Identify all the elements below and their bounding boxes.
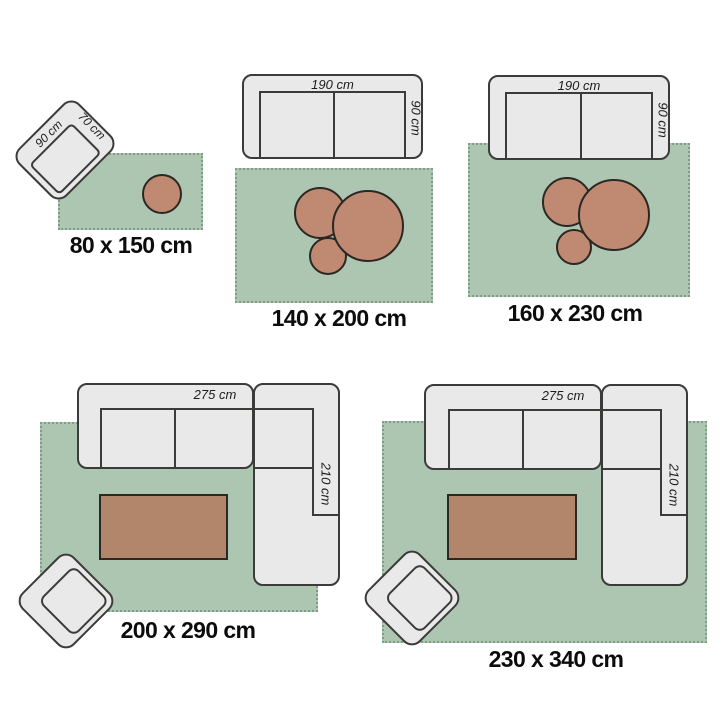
sofa-seat-outline xyxy=(505,92,653,158)
size-label-140x200: 140 x 200 cm xyxy=(272,305,407,332)
coffee-table xyxy=(447,494,577,560)
seat-arm-line xyxy=(448,409,450,470)
chaise-arm-end-line xyxy=(660,514,686,516)
sofa-width-label: 190 cm xyxy=(244,77,421,92)
size-label-230x340: 230 x 340 cm xyxy=(489,646,624,673)
corner-seat-line xyxy=(255,467,314,469)
sofa-depth-label: 90 cm xyxy=(656,102,671,137)
sofa-width-label: 190 cm xyxy=(490,78,668,93)
sectional-width-label: 275 cm xyxy=(194,387,237,402)
chaise-arm-line xyxy=(312,408,314,516)
cushion-divider-line xyxy=(174,408,176,469)
chaise-arm-line xyxy=(660,409,662,516)
pouf xyxy=(578,179,650,251)
corner-seat-line xyxy=(603,468,662,470)
sectional-depth-label: 210 cm xyxy=(319,463,334,506)
two-seat-sofa: 190 cm 90 cm xyxy=(488,75,670,160)
size-label-160x230: 160 x 230 cm xyxy=(508,300,643,327)
cushion-divider-line xyxy=(522,409,524,470)
rug-size-guide: 90 cm 70 cm 80 x 150 cm 190 cm 90 cm 140… xyxy=(0,0,720,720)
sectional-width-label: 275 cm xyxy=(542,388,585,403)
pouf xyxy=(332,190,404,262)
sofa-cushion-divider xyxy=(580,92,582,158)
chaise-arm-end-line xyxy=(312,514,338,516)
sectional-depth-label: 210 cm xyxy=(667,464,682,507)
seat-arm-line xyxy=(100,408,102,469)
sofa-depth-label: 90 cm xyxy=(409,100,424,135)
seat-back-line xyxy=(448,409,662,411)
coffee-table xyxy=(99,494,228,560)
size-label-80x150: 80 x 150 cm xyxy=(70,232,193,259)
size-label-200x290: 200 x 290 cm xyxy=(121,617,256,644)
pouf xyxy=(142,174,182,214)
two-seat-sofa: 190 cm 90 cm xyxy=(242,74,423,159)
seat-back-line xyxy=(100,408,314,410)
sofa-cushion-divider xyxy=(333,91,335,157)
